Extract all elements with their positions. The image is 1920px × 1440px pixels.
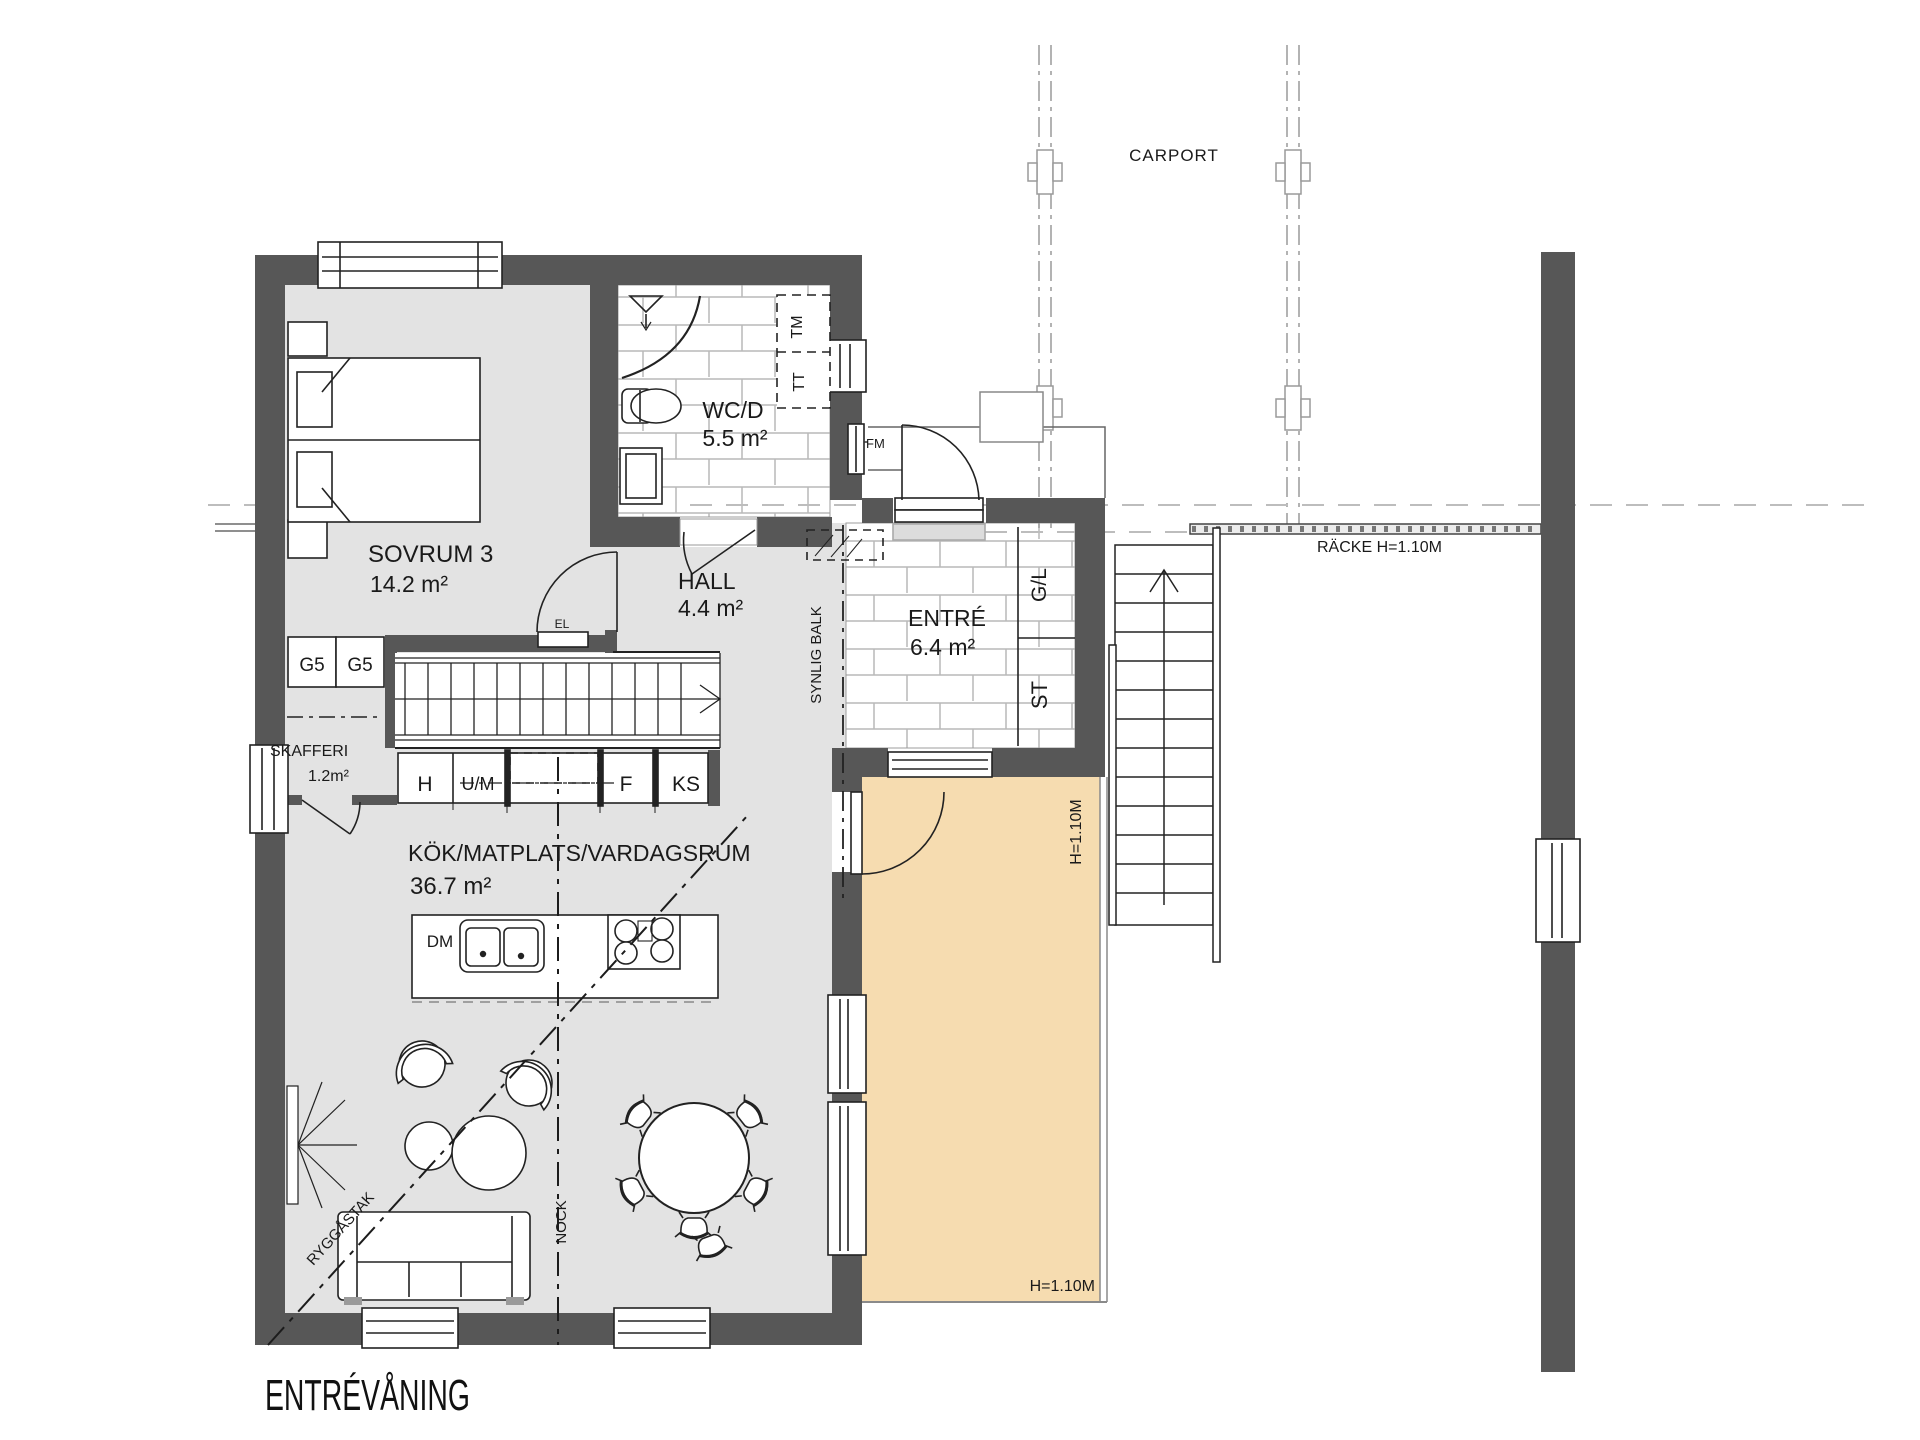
carport-post xyxy=(1276,386,1310,430)
room-name-skafferi: SKAFFERI xyxy=(270,743,348,760)
wardrobe-label-g5-left: G5 xyxy=(299,655,324,676)
unit-label-um: U/M xyxy=(462,774,495,794)
deck-height-bottom-label: H=1.10M xyxy=(1030,1278,1095,1295)
entry-porch xyxy=(864,392,1105,498)
toilet-icon xyxy=(622,389,681,423)
el-cabinet xyxy=(538,632,588,647)
deck-floor xyxy=(862,777,1100,1302)
window-fm-sidelight xyxy=(848,424,864,474)
window-bedroom-north xyxy=(318,242,502,288)
sofa xyxy=(338,1212,530,1305)
internal-stairs xyxy=(395,652,720,748)
closet-label-st: ST xyxy=(1027,681,1052,709)
pillow xyxy=(297,372,332,427)
page-title: ENTRÉVÅNING xyxy=(265,1371,470,1420)
nightstand-top xyxy=(288,322,327,356)
nightstand-bottom xyxy=(288,520,327,558)
floor-passage xyxy=(832,523,846,748)
tt-label: TT xyxy=(791,372,808,392)
el-label: EL xyxy=(555,617,570,631)
nock-label: NOCK xyxy=(553,1200,570,1243)
window-entre-south xyxy=(888,752,992,777)
sink-icon xyxy=(460,920,544,972)
cooktop-icon xyxy=(608,915,680,969)
wardrobe-label-g5-right: G5 xyxy=(347,655,372,676)
window-living-east-2 xyxy=(828,1102,866,1255)
window-living-east-1 xyxy=(828,995,866,1093)
carport-area xyxy=(1028,45,1310,528)
window-south-1 xyxy=(362,1308,458,1348)
dining-table xyxy=(639,1103,749,1213)
room-name-sovrum3: SOVRUM 3 xyxy=(368,541,493,568)
outdoor-stairs xyxy=(1109,528,1220,962)
floor-plan-page: CARPORT RÄCKE H=1.10M SOVRUM 3 14.2 m² W… xyxy=(0,0,1920,1440)
room-area-wcd: 5.5 m² xyxy=(702,425,768,451)
room-area-sovrum3: 14.2 m² xyxy=(370,571,448,597)
closet-label-gl: G/L xyxy=(1028,568,1051,602)
room-area-skafferi: 1.2m² xyxy=(308,768,350,785)
tm-label: TM xyxy=(789,315,806,338)
room-name-hall: HALL xyxy=(678,568,736,594)
room-name-kok: KÖK/MATPLATS/VARDAGSRUM xyxy=(408,840,751,866)
room-area-kok: 36.7 m² xyxy=(410,873,491,900)
unit-label-ks: KS xyxy=(672,773,700,796)
front-door xyxy=(893,425,985,540)
kitchen-counter xyxy=(398,750,708,813)
carport-label: CARPORT xyxy=(1129,146,1219,165)
deck-height-side-label: H=1.10M xyxy=(1068,799,1085,864)
floor-plan: CARPORT RÄCKE H=1.10M SOVRUM 3 14.2 m² W… xyxy=(0,0,1920,1440)
bed xyxy=(288,322,480,558)
window-wc-east xyxy=(826,340,866,392)
coffee-table-small xyxy=(405,1122,453,1170)
window-far-east-wall xyxy=(1536,839,1580,942)
room-area-hall: 4.4 m² xyxy=(678,595,744,621)
room-name-entre: ENTRÉ xyxy=(908,605,986,631)
railing xyxy=(1190,524,1541,534)
unit-label-h: H xyxy=(417,773,432,796)
synlig-balk-label: SYNLIG BALK xyxy=(808,606,825,704)
dishwasher-label: DM xyxy=(427,932,453,951)
wc-sink-icon xyxy=(620,448,662,504)
carport-post xyxy=(1276,150,1310,194)
pillow xyxy=(297,452,332,507)
kitchen-island xyxy=(412,915,718,1002)
window-south-2 xyxy=(614,1308,710,1348)
coffee-table-large xyxy=(452,1116,526,1190)
room-name-wcd: WC/D xyxy=(702,397,763,423)
fm-label: FM xyxy=(866,436,885,451)
room-area-entre: 6.4 m² xyxy=(910,634,976,660)
carport-post xyxy=(1028,150,1062,194)
unit-label-f: F xyxy=(620,773,633,796)
racke-label: RÄCKE H=1.10M xyxy=(1317,538,1442,556)
